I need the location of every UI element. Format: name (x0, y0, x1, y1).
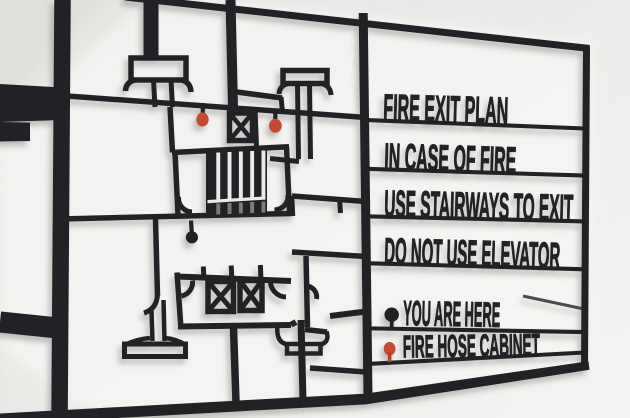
svg-text:FIRE EXIT PLAN: FIRE EXIT PLAN (383, 86, 509, 131)
svg-text:FIRE HOSE CABINET: FIRE HOSE CABINET (403, 327, 540, 365)
svg-text:USE STAIRWAYS TO EXIT: USE STAIRWAYS TO EXIT (384, 184, 574, 231)
svg-text:IN CASE OF FIRE: IN CASE OF FIRE (384, 135, 517, 181)
svg-text:DO NOT USE ELEVATOR: DO NOT USE ELEVATOR (384, 231, 561, 277)
